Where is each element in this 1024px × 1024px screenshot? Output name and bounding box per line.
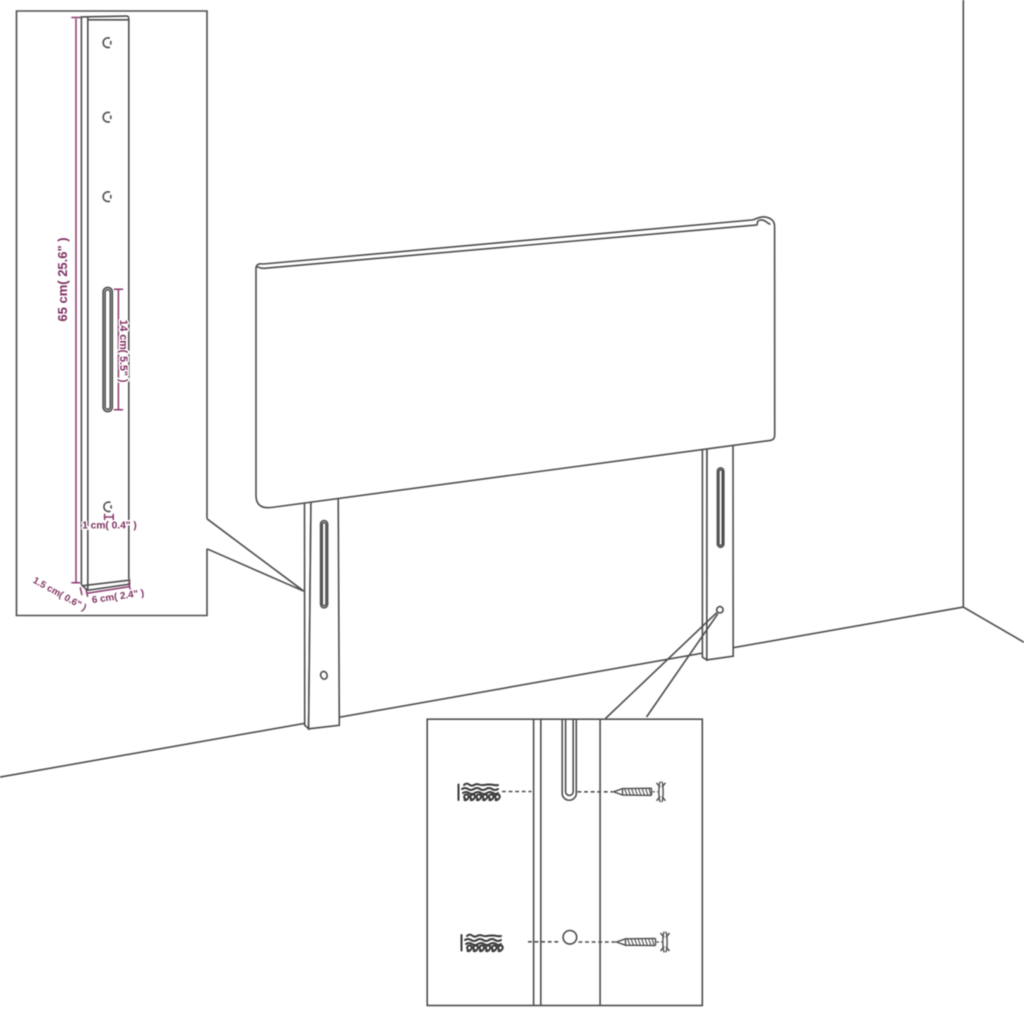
svg-text:65 cm( 25.6" ): 65 cm( 25.6" ) [55, 237, 70, 321]
svg-text:14 cm( 5.5" ): 14 cm( 5.5" ) [117, 320, 129, 383]
svg-text:1 cm( 0.4" ): 1 cm( 0.4" ) [82, 520, 137, 531]
